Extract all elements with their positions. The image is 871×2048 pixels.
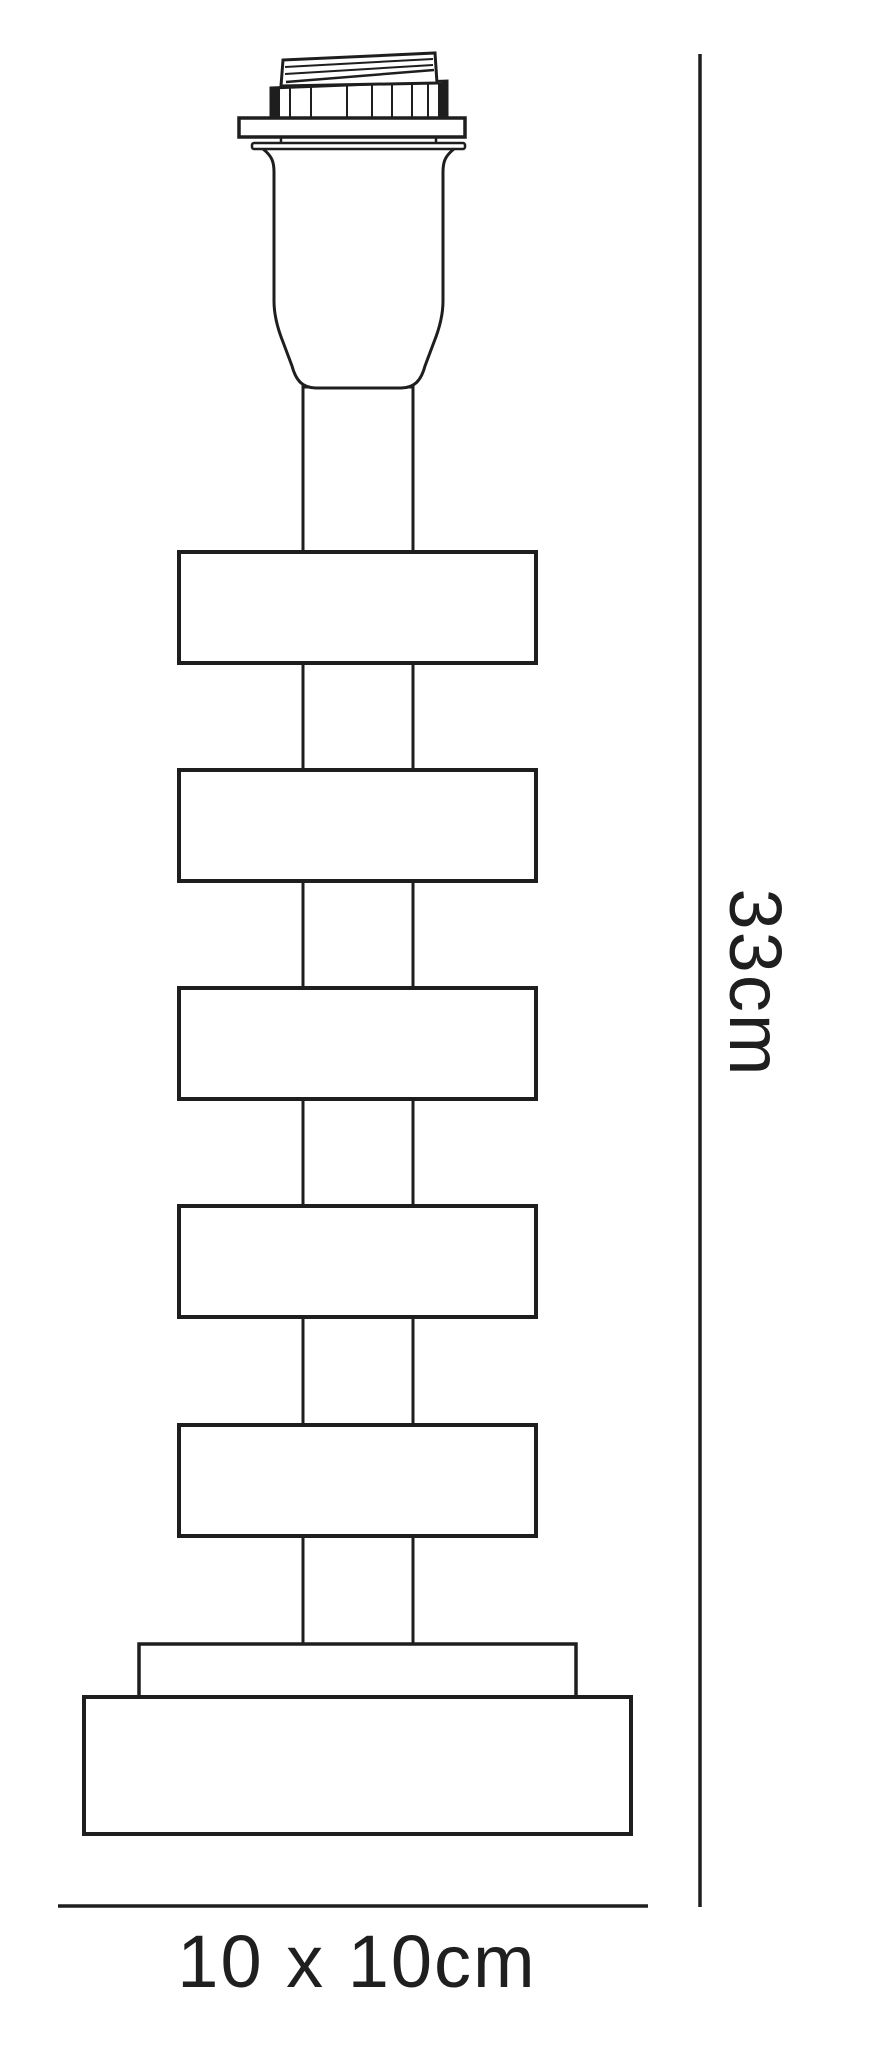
diagram-canvas: 33cm 10 x 10cm [0, 0, 871, 2048]
disc-5 [179, 1425, 536, 1536]
disc-2 [179, 770, 536, 881]
disc-1 [179, 552, 536, 663]
base-plinth [84, 1697, 631, 1834]
disc-4 [179, 1206, 536, 1317]
disc-3 [179, 988, 536, 1099]
socket-flange [239, 118, 465, 137]
base-step [139, 1644, 576, 1698]
collar-edge-right [438, 82, 446, 117]
socket-ring-plate [252, 143, 465, 149]
collar-edge-left [272, 88, 280, 117]
footprint-dimension-label: 10 x 10cm [177, 1925, 536, 1999]
socket-cup [263, 149, 454, 388]
height-dimension-label: 33cm [718, 889, 792, 1078]
